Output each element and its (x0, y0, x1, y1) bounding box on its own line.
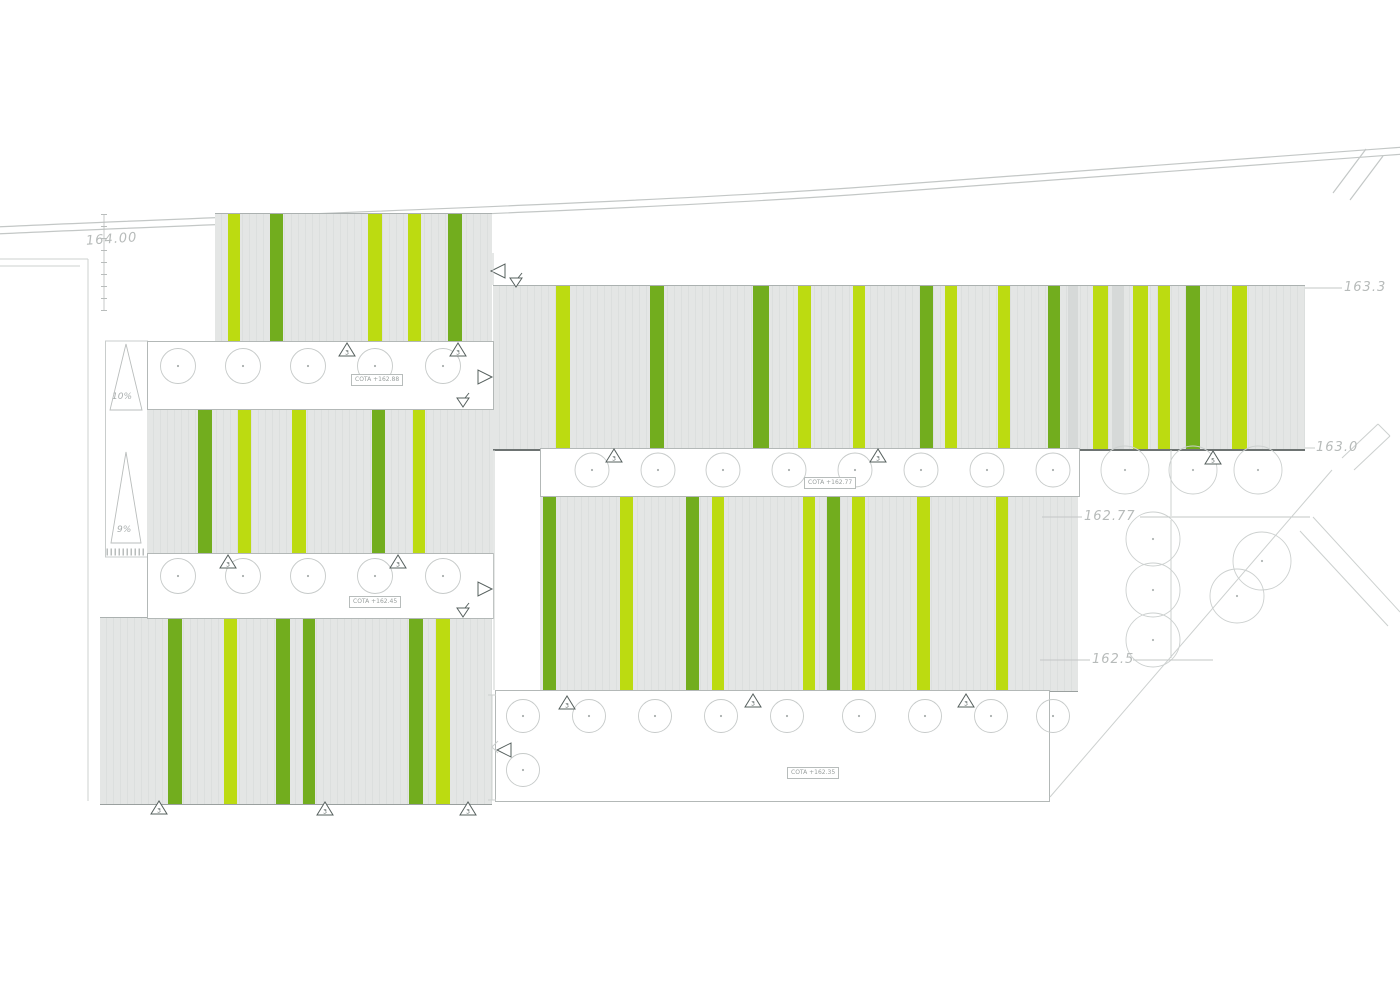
elevation-label-163-0: 163.0 (1316, 440, 1358, 455)
elevation-label-164-00: 164.00 (86, 230, 138, 249)
cota-label-1: COTA +162.88 (351, 374, 403, 386)
cota-label-3: COTA +162.77 (804, 477, 856, 489)
elevation-label-162-5: 162.5 (1092, 652, 1134, 667)
site-plan-canvas: 3333335333333 164.00 163.3 163.0 162.77 … (0, 0, 1400, 990)
elevation-label-162-77: 162.77 (1084, 509, 1136, 524)
ramp-slope-label-9: 9% (117, 525, 131, 535)
ramp-slope-label-10: 10% (112, 392, 132, 402)
elevation-label-163-3: 163.3 (1344, 280, 1386, 295)
cota-label-4: COTA +162.35 (787, 767, 839, 779)
cota-label-2: COTA +162.45 (349, 596, 401, 608)
text-labels-layer: 164.00 163.3 163.0 162.77 162.5 10% 9% C… (0, 0, 1400, 990)
